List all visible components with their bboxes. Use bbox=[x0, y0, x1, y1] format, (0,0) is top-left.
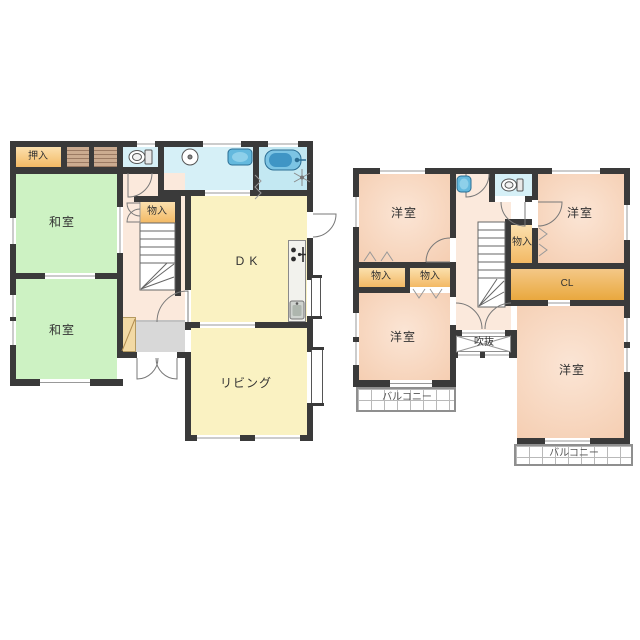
door-opening bbox=[185, 330, 191, 352]
door-opening bbox=[137, 352, 177, 359]
window bbox=[353, 313, 359, 337]
label-monoire-mid: 物入 bbox=[420, 272, 440, 282]
wall bbox=[505, 263, 630, 269]
window bbox=[268, 141, 298, 147]
wall bbox=[353, 287, 410, 293]
window bbox=[552, 168, 600, 174]
bay-window-cap bbox=[310, 403, 324, 406]
label-oshiire: 押入 bbox=[28, 152, 48, 162]
wall bbox=[175, 196, 181, 296]
tokonoma-right bbox=[94, 147, 117, 167]
label-monoire: 物入 bbox=[147, 207, 167, 217]
bay-window-cap bbox=[310, 347, 324, 350]
wall bbox=[89, 147, 94, 167]
window bbox=[203, 141, 241, 147]
window bbox=[458, 352, 480, 358]
label-monoire-right: 物入 bbox=[512, 238, 532, 248]
window bbox=[353, 197, 359, 227]
window bbox=[624, 318, 630, 342]
label-yoshitsu-bottom-right: 洋室 bbox=[559, 364, 585, 376]
label-balcony-right: バルコニー bbox=[549, 449, 599, 459]
wall bbox=[10, 141, 16, 385]
kitchen-backdoor-arc bbox=[313, 214, 336, 237]
window bbox=[45, 273, 95, 279]
shoe-cabinet bbox=[121, 317, 136, 352]
floor-plan-canvas: 押入和室和室物入DKリビング洋室洋室物入物入洋室バルコニー物入CL吹抜洋室バルコ… bbox=[0, 0, 640, 640]
window bbox=[197, 435, 240, 441]
window bbox=[137, 141, 155, 147]
label-monoire-left: 物入 bbox=[371, 272, 391, 282]
counter-window bbox=[311, 277, 321, 318]
window bbox=[117, 207, 123, 253]
window bbox=[390, 380, 432, 387]
door-opening bbox=[511, 306, 517, 330]
wall bbox=[61, 147, 67, 167]
window bbox=[10, 218, 16, 244]
label-living: リビング bbox=[220, 377, 272, 389]
wall bbox=[10, 167, 164, 174]
label-dk: DK bbox=[236, 255, 263, 267]
wall bbox=[185, 196, 191, 290]
label-void: 吹抜 bbox=[474, 338, 494, 348]
door-opening bbox=[307, 212, 313, 238]
door-opening bbox=[450, 297, 456, 325]
wall bbox=[253, 147, 259, 190]
label-yoshitsu-top-left: 洋室 bbox=[391, 207, 417, 219]
window bbox=[380, 168, 425, 174]
window bbox=[624, 205, 630, 240]
window bbox=[548, 300, 570, 306]
window bbox=[545, 438, 590, 444]
wall bbox=[134, 196, 181, 202]
window bbox=[624, 348, 630, 372]
bathroom bbox=[259, 147, 307, 190]
toilet-room-2f bbox=[495, 174, 532, 196]
wall bbox=[158, 147, 164, 196]
label-yoshitsu-top-right: 洋室 bbox=[567, 207, 593, 219]
window bbox=[353, 342, 359, 365]
label-yoshitsu-mid-left: 洋室 bbox=[390, 331, 416, 343]
window bbox=[200, 322, 255, 328]
label-washitsu-upper: 和室 bbox=[49, 216, 75, 228]
toilet-room-1f bbox=[123, 147, 158, 167]
window bbox=[462, 330, 505, 336]
kitchen-counter bbox=[288, 240, 306, 322]
window bbox=[40, 379, 90, 386]
label-washitsu-lower: 和室 bbox=[49, 324, 75, 336]
window bbox=[485, 352, 509, 358]
window bbox=[10, 295, 16, 317]
tokonoma-left bbox=[67, 147, 89, 167]
door-opening bbox=[450, 238, 456, 262]
bay-window bbox=[311, 349, 323, 406]
entrance-step bbox=[136, 320, 185, 322]
label-balcony-left: バルコニー bbox=[382, 393, 432, 403]
entrance-double-door-arcs bbox=[137, 358, 177, 379]
counter-window-cap bbox=[310, 275, 322, 278]
window bbox=[205, 190, 250, 196]
door-opening bbox=[532, 200, 538, 228]
wall bbox=[489, 174, 495, 196]
window bbox=[255, 435, 300, 441]
window bbox=[10, 321, 16, 345]
label-closet: CL bbox=[561, 279, 574, 289]
counter-window-cap bbox=[310, 316, 322, 319]
door-opening bbox=[495, 196, 525, 202]
genkan bbox=[136, 322, 185, 352]
